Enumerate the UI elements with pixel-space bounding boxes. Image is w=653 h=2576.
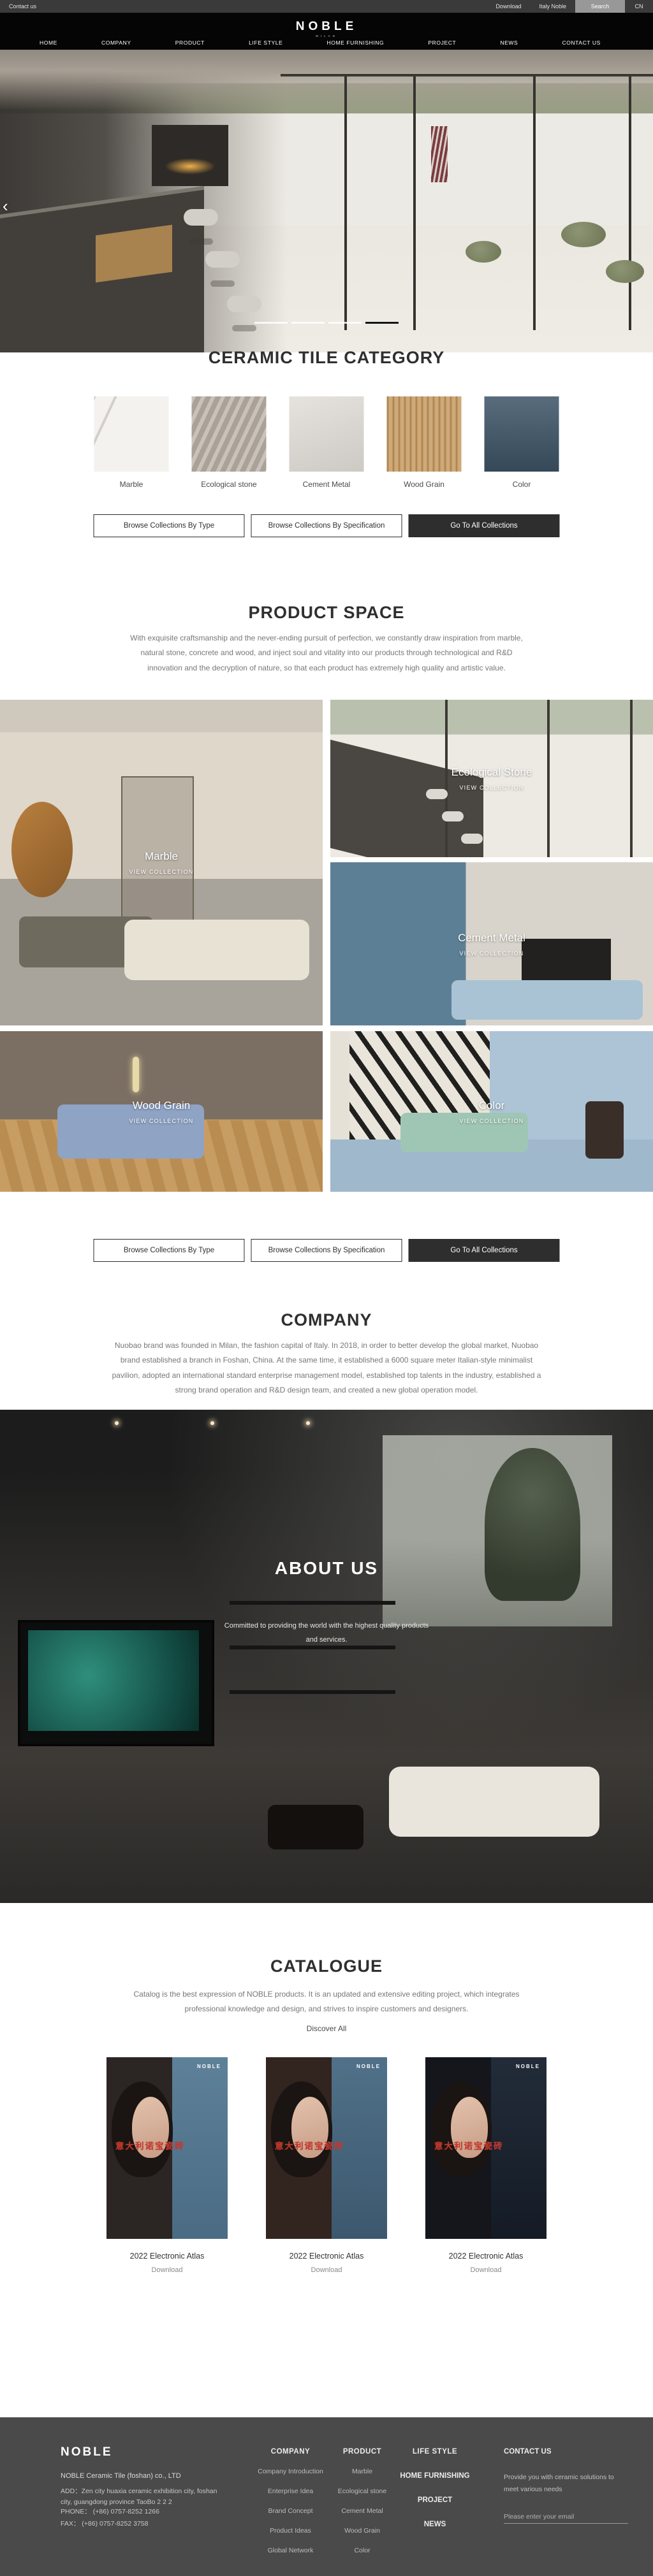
swatch-label: Cement Metal: [290, 480, 364, 489]
go-to-all-collections-button[interactable]: Go To All Collections: [409, 514, 560, 537]
hero-carousel: ‹: [0, 50, 653, 352]
cover-chinese-title: 意大利诺宝瓷砖: [115, 2139, 224, 2152]
footer-link[interactable]: Brand Concept: [254, 2507, 327, 2515]
catalogue-description: Catalog is the best expression of NOBLE …: [122, 1987, 531, 2017]
hero-art-plant: [606, 260, 644, 283]
main-nav: HOME COMPANY PRODUCT LIFE STYLE HOME FUR…: [40, 40, 601, 46]
catalogue-download-link[interactable]: Download: [266, 2266, 387, 2274]
carousel-dash-4-active[interactable]: [365, 322, 399, 324]
carousel-dash-1[interactable]: [254, 322, 288, 324]
cover-logo: NOBLE: [197, 2064, 221, 2069]
top-utility-bar: Contact us Download Italy Noble Search C…: [0, 0, 653, 13]
footer-link[interactable]: Enterprise Idea: [254, 2487, 327, 2495]
nav-product[interactable]: PRODUCT: [175, 40, 205, 46]
product-space-title: PRODUCT SPACE: [0, 603, 653, 623]
about-us-title: ABOUT US: [0, 1558, 653, 1579]
category-swatch-cement-metal[interactable]: Cement Metal: [290, 396, 364, 489]
hero-art-window-mullion: [533, 75, 536, 330]
download-link[interactable]: Download: [495, 3, 521, 10]
catalogue-cover[interactable]: NOBLE 意大利诺宝瓷砖: [425, 2057, 547, 2239]
tile-overlay: Ecological Stone VIEW COLLECTION: [330, 700, 653, 857]
cover-chinese-title: 意大利诺宝瓷砖: [275, 2139, 383, 2152]
tile-label: Color: [479, 1099, 505, 1112]
catalogue-section-title: CATALOGUE: [0, 1957, 653, 1976]
footer-address: ADD：Zen city huaxia ceramic exhibition c…: [61, 2486, 220, 2508]
newsletter-email-input[interactable]: [504, 2510, 628, 2524]
category-swatch-color[interactable]: Color: [485, 396, 559, 489]
gallery-tile-marble[interactable]: Marble VIEW COLLECTION: [0, 700, 323, 1025]
gallery-tile-wood-grain[interactable]: Wood Grain VIEW COLLECTION: [0, 1031, 323, 1192]
footer-contact-column: CONTACT US Provide you with ceramic solu…: [504, 2448, 615, 2524]
company-description: Nuobao brand was founded in Milan, the f…: [106, 1338, 547, 1398]
nav-home-furnishing[interactable]: HOME FURNISHING: [327, 40, 385, 46]
catalogue-download-link[interactable]: Download: [425, 2266, 547, 2274]
about-art-spotlight: [306, 1421, 310, 1425]
swatch-label: Ecological stone: [192, 480, 267, 489]
hero-art-fireplace: [152, 125, 228, 186]
cement-metal-swatch-image: [290, 396, 364, 472]
footer-nav-column: LIFE STYLE HOME FURNISHING PROJECT NEWS: [397, 2448, 473, 2528]
about-art-ottoman: [268, 1805, 363, 1849]
catalogue-title: 2022 Electronic Atlas: [425, 2252, 547, 2261]
cover-logo: NOBLE: [356, 2064, 381, 2069]
site-header: NOBLE MILAN HOME COMPANY PRODUCT LIFE ST…: [0, 13, 653, 50]
catalogue-cover[interactable]: NOBLE 意大利诺宝瓷砖: [106, 2057, 228, 2239]
browse-by-specification-button[interactable]: Browse Collections By Specification: [251, 1239, 402, 1262]
wood-grain-swatch-image: [387, 396, 462, 472]
footer-life-style-link[interactable]: LIFE STYLE: [397, 2448, 473, 2456]
footer-column-title[interactable]: COMPANY: [254, 2448, 327, 2456]
category-swatch-row: Marble Ecological stone Cement Metal Woo…: [94, 396, 559, 489]
footer-link[interactable]: Color: [330, 2547, 394, 2554]
footer-company-column: COMPANY Company Introduction Enterprise …: [254, 2448, 327, 2554]
footer-link[interactable]: Cement Metal: [330, 2507, 394, 2515]
tile-overlay: Color VIEW COLLECTION: [330, 1031, 653, 1192]
nav-company[interactable]: COMPANY: [101, 40, 131, 46]
catalogue-item-2: NOBLE 意大利诺宝瓷砖 2022 Electronic Atlas Down…: [266, 2057, 387, 2274]
swatch-label: Wood Grain: [387, 480, 462, 489]
hero-art-plant: [561, 222, 606, 247]
catalogue-download-link[interactable]: Download: [106, 2266, 228, 2274]
browse-by-type-button[interactable]: Browse Collections By Type: [94, 1239, 245, 1262]
nav-home[interactable]: HOME: [40, 40, 57, 46]
gallery-tile-cement-metal[interactable]: Cement Metal VIEW COLLECTION: [330, 862, 653, 1025]
tile-label: Wood Grain: [133, 1099, 190, 1112]
noble-homepage: Contact us Download Italy Noble Search C…: [0, 0, 653, 2576]
language-toggle[interactable]: CN: [625, 3, 653, 10]
nav-project[interactable]: PROJECT: [428, 40, 456, 46]
catalogue-item-3: NOBLE 意大利诺宝瓷砖 2022 Electronic Atlas Down…: [425, 2057, 547, 2274]
footer-link[interactable]: Marble: [330, 2468, 394, 2475]
footer-product-column: PRODUCT Marble Ecological stone Cement M…: [330, 2448, 394, 2554]
browse-by-specification-button[interactable]: Browse Collections By Specification: [251, 514, 402, 537]
hero-art-window-mullion: [413, 75, 416, 330]
product-space-buttons-row: Browse Collections By Type Browse Collec…: [94, 1239, 560, 1262]
carousel-pagination: [0, 322, 653, 324]
about-us-banner: ABOUT US Committed to providing the worl…: [0, 1410, 653, 1903]
hero-art-fire-glow: [165, 158, 216, 175]
hero-art-stool: [205, 251, 240, 268]
view-collection-link[interactable]: VIEW COLLECTION: [459, 950, 524, 957]
italy-noble-link[interactable]: Italy Noble: [539, 3, 566, 10]
hero-art-plant: [466, 241, 501, 263]
catalogue-title: 2022 Electronic Atlas: [266, 2252, 387, 2261]
footer-news-link[interactable]: NEWS: [397, 2521, 473, 2528]
product-space-description: With exquisite craftsmanship and the nev…: [122, 631, 531, 676]
footer-contact-text: Provide you with ceramic solutions to me…: [504, 2471, 615, 2496]
discover-all-link[interactable]: Discover All: [0, 2024, 653, 2033]
site-footer: NOBLE NOBLE Ceramic Tile (foshan) co., L…: [0, 2417, 653, 2576]
nav-life-style[interactable]: LIFE STYLE: [249, 40, 282, 46]
footer-phone: PHONE： (+86) 0757-8252 1266: [61, 2507, 159, 2516]
footer-fax: FAX： (+86) 0757-8252 3758: [61, 2519, 148, 2528]
category-swatch-ecological-stone[interactable]: Ecological stone: [192, 396, 267, 489]
footer-home-furnishing-link[interactable]: HOME FURNISHING: [397, 2472, 473, 2480]
catalogue-item-1: NOBLE 意大利诺宝瓷砖 2022 Electronic Atlas Down…: [106, 2057, 228, 2274]
footer-link[interactable]: Ecological stone: [330, 2487, 394, 2495]
hero-art-stool: [227, 296, 261, 312]
carousel-dash-2[interactable]: [291, 322, 325, 324]
footer-column-title[interactable]: PRODUCT: [330, 2448, 394, 2456]
category-section-title: CERAMIC TILE CATEGORY: [0, 348, 653, 368]
footer-logo: NOBLE: [61, 2445, 113, 2459]
tile-label: Marble: [145, 850, 178, 863]
about-art-shelf: [230, 1601, 395, 1605]
hero-art-window-frame: [281, 74, 653, 76]
footer-link[interactable]: Product Ideas: [254, 2527, 327, 2535]
cover-chinese-title: 意大利诺宝瓷砖: [434, 2139, 543, 2152]
category-swatch-wood-grain[interactable]: Wood Grain: [387, 396, 462, 489]
tile-label: Ecological Stone: [451, 766, 532, 779]
view-collection-link[interactable]: VIEW COLLECTION: [129, 869, 193, 875]
footer-project-link[interactable]: PROJECT: [397, 2496, 473, 2504]
view-collection-link[interactable]: VIEW COLLECTION: [129, 1118, 193, 1124]
footer-contact-title[interactable]: CONTACT US: [504, 2448, 615, 2456]
tile-overlay: Wood Grain VIEW COLLECTION: [0, 1031, 323, 1192]
view-collection-link[interactable]: VIEW COLLECTION: [459, 1118, 524, 1124]
contact-us-link[interactable]: Contact us: [9, 3, 36, 10]
nav-contact-us[interactable]: CONTACT US: [562, 40, 600, 46]
footer-link[interactable]: Global Network: [254, 2547, 327, 2554]
product-space-gallery: Marble VIEW COLLECTION Ecological Stone …: [0, 700, 653, 1192]
about-art-sofa: [389, 1767, 599, 1837]
category-swatch-marble[interactable]: Marble: [94, 396, 169, 489]
carousel-dash-3[interactable]: [328, 322, 362, 324]
swatch-label: Color: [485, 480, 559, 489]
hero-art-stool: [184, 209, 218, 226]
footer-link[interactable]: Company Introduction: [254, 2468, 327, 2475]
view-collection-link[interactable]: VIEW COLLECTION: [459, 785, 524, 791]
logo-text: NOBLE: [0, 20, 653, 34]
ecological-stone-swatch-image: [192, 396, 267, 472]
footer-link[interactable]: Wood Grain: [330, 2527, 394, 2535]
hero-art-window-mullion: [629, 75, 631, 330]
gallery-tile-color[interactable]: Color VIEW COLLECTION: [330, 1031, 653, 1192]
noble-logo[interactable]: NOBLE MILAN: [0, 20, 653, 38]
nav-news[interactable]: NEWS: [500, 40, 518, 46]
catalogue-cover[interactable]: NOBLE 意大利诺宝瓷砖: [266, 2057, 387, 2239]
color-swatch-image: [485, 396, 559, 472]
gallery-tile-ecological-stone[interactable]: Ecological Stone VIEW COLLECTION: [330, 700, 653, 857]
about-art-spotlight: [115, 1421, 119, 1425]
browse-by-type-button[interactable]: Browse Collections By Type: [94, 514, 245, 537]
carousel-prev-icon[interactable]: ‹: [3, 198, 8, 214]
category-buttons-row: Browse Collections By Type Browse Collec…: [94, 514, 560, 537]
tile-overlay: Marble VIEW COLLECTION: [0, 700, 323, 1025]
tile-overlay: Cement Metal VIEW COLLECTION: [330, 862, 653, 1025]
catalogue-title: 2022 Electronic Atlas: [106, 2252, 228, 2261]
swatch-label: Marble: [94, 480, 169, 489]
hero-art-window-mullion: [344, 75, 347, 330]
go-to-all-collections-button[interactable]: Go To All Collections: [409, 1239, 560, 1262]
footer-company-name: NOBLE Ceramic Tile (foshan) co., LTD: [61, 2472, 181, 2480]
catalogue-covers-row: NOBLE 意大利诺宝瓷砖 2022 Electronic Atlas Down…: [106, 2057, 547, 2274]
logo-subtext: MILAN: [0, 34, 653, 38]
hero-art-hanging-garment: [431, 126, 448, 182]
marble-swatch-image: [94, 396, 169, 472]
search-button[interactable]: Search: [575, 0, 625, 13]
cover-logo: NOBLE: [516, 2064, 540, 2069]
tile-label: Cement Metal: [458, 932, 525, 944]
about-us-tagline: Committed to providing the world with th…: [0, 1619, 653, 1633]
about-us-tagline-2: and services.: [0, 1633, 653, 1647]
company-section-title: COMPANY: [0, 1310, 653, 1330]
about-art-spotlight: [210, 1421, 214, 1425]
